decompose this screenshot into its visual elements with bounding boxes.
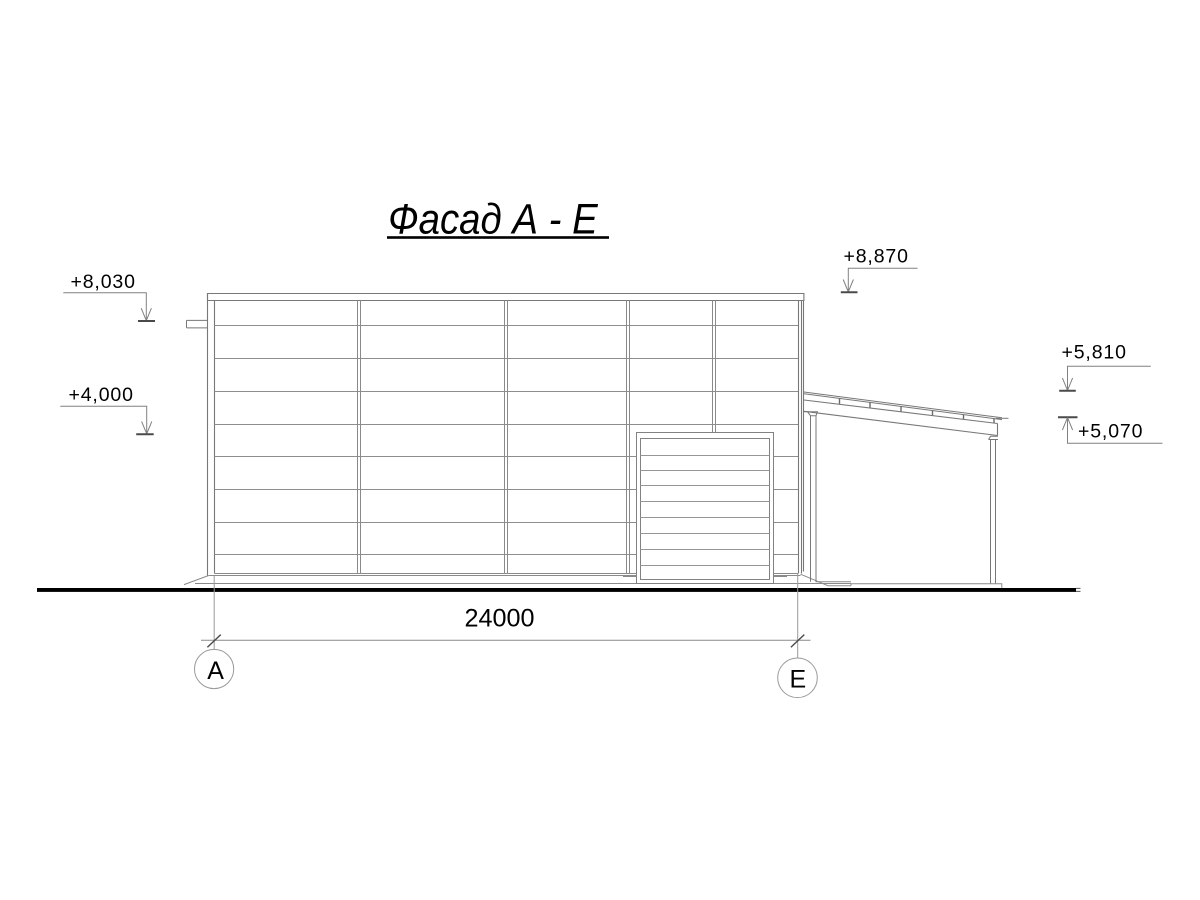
- svg-text:+5,810: +5,810: [1062, 342, 1127, 364]
- svg-text:Фасад А - Е: Фасад А - Е: [388, 194, 598, 243]
- svg-text:Е: Е: [790, 666, 807, 694]
- svg-text:А: А: [207, 657, 224, 685]
- svg-text:+5,070: +5,070: [1078, 420, 1143, 442]
- svg-text:+8,870: +8,870: [844, 245, 909, 267]
- svg-text:+4,000: +4,000: [69, 384, 134, 406]
- svg-text:+8,030: +8,030: [71, 271, 136, 293]
- svg-text:24000: 24000: [465, 605, 535, 633]
